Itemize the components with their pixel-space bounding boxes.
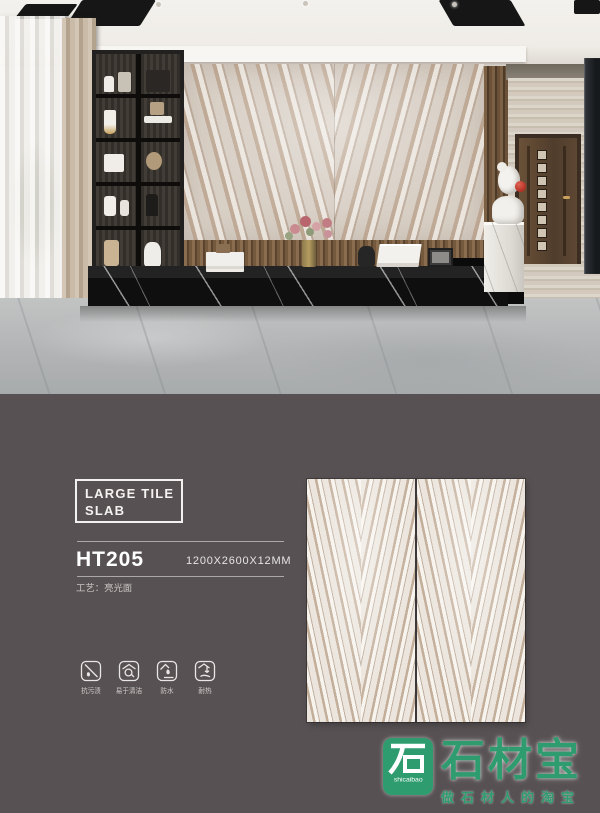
product-model: HT205 xyxy=(76,548,144,572)
shelf-decor-jar xyxy=(120,200,129,216)
series-title-line1: LARGE TILE xyxy=(85,485,181,502)
series-title-line2: SLAB xyxy=(85,502,181,519)
flower-bloom xyxy=(322,218,332,228)
product-process: 工艺：亮光面 xyxy=(76,581,132,594)
door-window xyxy=(537,189,547,199)
feature-heat-resistant: 耐热 xyxy=(186,660,224,700)
shelf-decor-goblet xyxy=(104,110,116,134)
slab-sheen xyxy=(417,479,525,722)
shelf-decor-books xyxy=(104,154,124,172)
easy-clean-icon xyxy=(118,660,140,682)
product-slab-swatch xyxy=(307,479,525,722)
feature-label: 易于清洁 xyxy=(116,685,142,695)
door-window xyxy=(537,202,547,212)
waterproof-icon xyxy=(156,660,178,682)
dark-sculpture xyxy=(358,246,375,267)
divider-bottom xyxy=(77,576,284,577)
bookshelf-shelf xyxy=(96,94,180,98)
shelf-decor-figurine xyxy=(144,242,161,267)
slab-panel-left xyxy=(307,479,415,722)
feature-waterproof: 防水 xyxy=(148,660,186,700)
room-photo xyxy=(0,0,600,394)
heat-resistant-icon xyxy=(194,660,216,682)
brand-text-block: 石材宝 做石材人的淘宝 xyxy=(441,738,582,806)
bookshelf-divider xyxy=(136,54,141,278)
door-window xyxy=(537,163,547,173)
shelf-decor-book-stack xyxy=(144,116,172,123)
magazine-display xyxy=(376,244,421,267)
bench-floor-shadow xyxy=(80,306,526,322)
marble-pedestal xyxy=(484,222,524,292)
brand-name: 石材宝 xyxy=(441,738,582,784)
slab-sheen xyxy=(307,479,415,722)
bust-sculpture-chest xyxy=(492,196,524,224)
door-window xyxy=(537,150,547,160)
ceiling-vent-corner xyxy=(574,0,600,14)
ceiling-spotlight xyxy=(303,1,308,6)
flower-bloom xyxy=(300,216,311,227)
shelf-decor-bottle xyxy=(146,194,158,216)
door-window xyxy=(537,241,547,251)
feature-icons-row: 抗污渍 易于清洁 防水 xyxy=(72,660,232,700)
bookshelf-shelf xyxy=(96,226,180,230)
feature-label: 抗污渍 xyxy=(81,685,101,695)
feature-label: 耐热 xyxy=(198,685,211,695)
photo-frame xyxy=(428,248,453,267)
bookshelf-shelf xyxy=(96,138,180,142)
shelf-decor-sculpture xyxy=(104,240,119,266)
feature-easy-clean: 易于清洁 xyxy=(110,660,148,700)
feature-label: 防水 xyxy=(160,685,173,695)
divider-top xyxy=(77,541,284,542)
door-window xyxy=(537,215,547,225)
feature-anti-stain: 抗污渍 xyxy=(72,660,110,700)
display-bookshelf xyxy=(92,50,184,282)
door-window xyxy=(537,176,547,186)
sheer-curtain xyxy=(0,16,70,346)
anti-stain-icon xyxy=(80,660,102,682)
flower-bloom xyxy=(324,230,332,238)
product-size: 1200X2600X12MM xyxy=(186,555,284,567)
slab-panel-right xyxy=(417,479,525,722)
flower-leaf xyxy=(306,228,314,236)
black-marble-bench xyxy=(88,266,508,306)
brand-latin-name: shicaibao xyxy=(394,776,423,783)
brand-tagline: 做石材人的淘宝 xyxy=(441,787,582,806)
book-stack-ornament xyxy=(216,244,230,253)
shelf-decor-jar xyxy=(104,196,116,216)
door-frame xyxy=(515,134,581,264)
pedestal-veining xyxy=(484,222,524,292)
dark-glass-panel xyxy=(584,58,600,274)
stylized-stone-glyph xyxy=(384,738,432,778)
flower-leaf xyxy=(285,232,293,240)
series-title-box: LARGE TILE SLAB xyxy=(75,479,183,523)
spec-panel: LARGE TILE SLAB HT205 1200X2600X12MM 工艺：… xyxy=(0,394,600,813)
shelf-decor-books xyxy=(118,72,131,92)
photo-frame-inner xyxy=(432,252,449,263)
flower-bouquet xyxy=(284,214,336,246)
bookshelf-shelf xyxy=(96,182,180,186)
door-stile xyxy=(527,146,530,256)
brand-logo: shicaibao 石材宝 做石材人的淘宝 xyxy=(383,738,582,806)
book-stack xyxy=(206,252,244,266)
shelf-decor-woven-sphere xyxy=(146,152,162,170)
shelf-decor-vase xyxy=(104,76,114,92)
shelf-decor-books xyxy=(146,70,170,92)
red-ball-ornament xyxy=(515,181,526,192)
brand-logo-mark: shicaibao xyxy=(383,738,433,795)
shelf-decor-ornament xyxy=(150,102,164,115)
wooden-door xyxy=(519,138,577,264)
door-window xyxy=(537,228,547,238)
ceiling-spotlight xyxy=(452,2,457,7)
bench-white-veins xyxy=(88,266,508,306)
bust-sculpture-hair xyxy=(497,162,507,172)
door-stile xyxy=(563,146,566,256)
door-handle xyxy=(563,196,570,199)
ceiling-spotlight xyxy=(156,2,161,7)
